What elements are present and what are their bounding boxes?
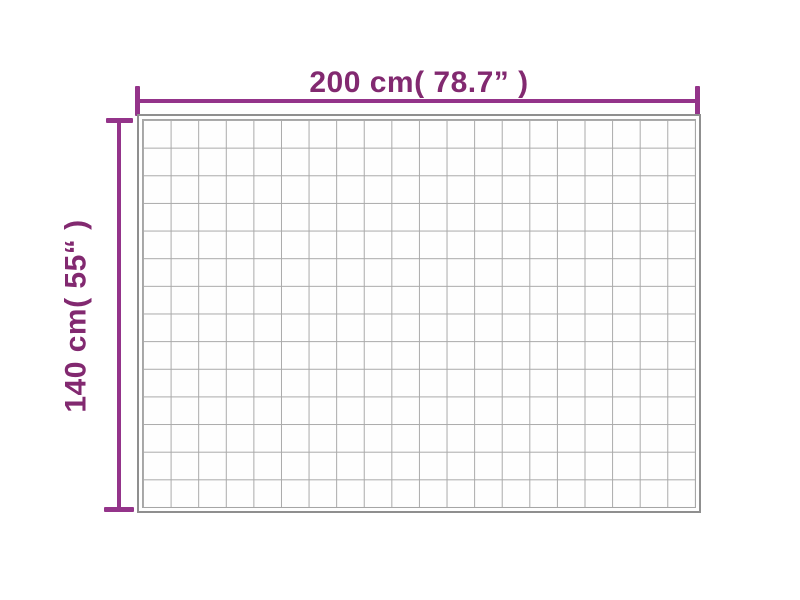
- blanket-quilt-grid: [143, 120, 695, 507]
- dimension-diagram: 200 cm( 78.7” ) 140 cm( 55“ ): [0, 0, 800, 600]
- blanket-outline: [137, 114, 701, 513]
- height-dimension-label-wrap: 140 cm( 55“ ): [46, 121, 108, 511]
- height-dimension-label: 140 cm( 55“ ): [62, 219, 92, 412]
- height-dimension-bottom-tick: [104, 507, 134, 512]
- width-dimension-left-tick: [135, 86, 140, 116]
- width-dimension-line: [137, 99, 699, 103]
- height-dimension-top-tick: [106, 118, 133, 123]
- width-dimension-right-tick: [695, 86, 700, 116]
- blanket-binding-border: [142, 119, 696, 508]
- height-dimension-line: [117, 121, 121, 510]
- width-dimension-label: 200 cm( 78.7” ): [137, 68, 701, 98]
